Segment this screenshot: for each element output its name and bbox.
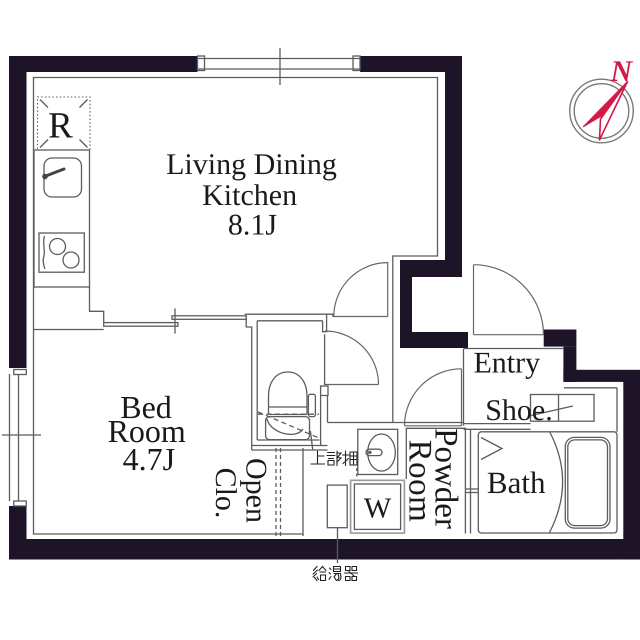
- svg-text:8.1J: 8.1J: [228, 209, 278, 242]
- svg-text:Entry: Entry: [473, 347, 540, 380]
- svg-text:N: N: [610, 55, 634, 88]
- svg-text:Open: Open: [240, 458, 273, 523]
- svg-text:4.7J: 4.7J: [123, 441, 175, 477]
- svg-text:Living Dining: Living Dining: [166, 148, 337, 181]
- svg-text:W: W: [364, 493, 392, 525]
- svg-text:Shoe.: Shoe.: [485, 394, 553, 427]
- svg-text:Bath: Bath: [487, 465, 546, 500]
- svg-text:Clo.: Clo.: [209, 468, 242, 519]
- svg-text:Room: Room: [402, 440, 438, 523]
- svg-text:R: R: [48, 106, 73, 147]
- svg-text:Kitchen: Kitchen: [202, 179, 297, 212]
